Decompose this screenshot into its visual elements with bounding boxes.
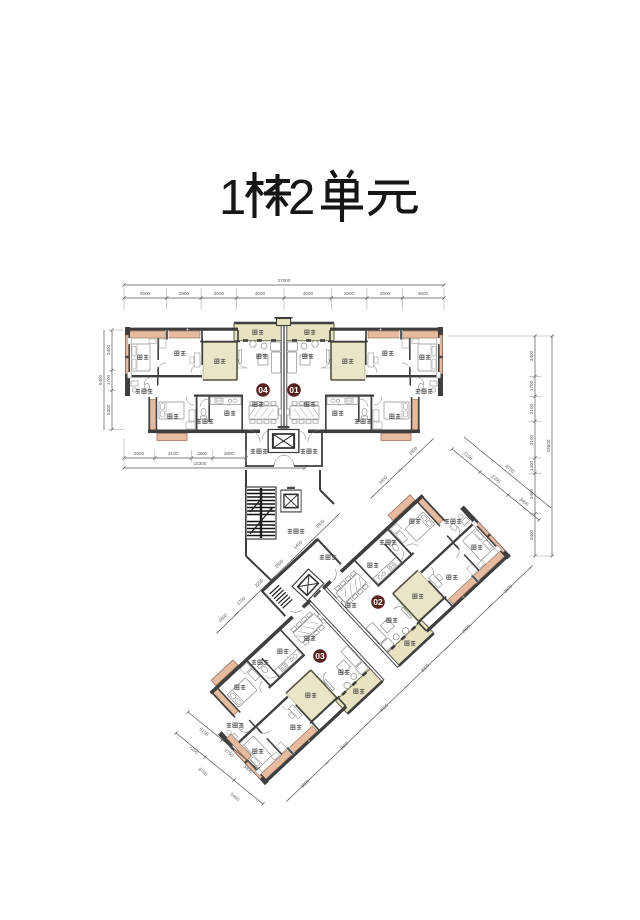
svg-text:3300: 3300	[106, 404, 111, 415]
svg-text:3100: 3100	[529, 434, 534, 445]
svg-text:3000: 3000	[214, 291, 225, 296]
svg-text:1800: 1800	[197, 451, 208, 456]
svg-text:3400: 3400	[529, 350, 534, 361]
svg-text:2100: 2100	[462, 451, 473, 462]
svg-text:8700: 8700	[504, 464, 515, 475]
svg-text:1300: 1300	[529, 460, 534, 471]
svg-text:1800: 1800	[315, 518, 326, 529]
svg-text:3000: 3000	[344, 291, 355, 296]
svg-text:03: 03	[315, 651, 325, 661]
svg-text:2: 2	[288, 171, 315, 225]
svg-text:04: 04	[258, 385, 268, 395]
svg-text:2600: 2600	[134, 451, 145, 456]
svg-text:1700: 1700	[529, 380, 534, 391]
svg-text:8700: 8700	[197, 767, 208, 778]
svg-text:3400: 3400	[378, 474, 389, 485]
svg-text:1700: 1700	[106, 374, 111, 385]
svg-text:3600: 3600	[418, 291, 429, 296]
svg-text:2200: 2200	[490, 474, 501, 485]
svg-text:2650: 2650	[339, 740, 350, 751]
svg-text:2900: 2900	[380, 291, 391, 296]
svg-text:01: 01	[289, 385, 299, 395]
svg-text:2600: 2600	[461, 623, 472, 634]
svg-text:1400: 1400	[293, 539, 304, 550]
svg-text:3100: 3100	[168, 451, 179, 456]
svg-text:2800: 2800	[224, 451, 235, 456]
svg-text:3400: 3400	[106, 344, 111, 355]
svg-text:15300: 15300	[194, 461, 207, 466]
svg-text:8400: 8400	[98, 374, 103, 385]
svg-text:18600: 18600	[546, 439, 551, 452]
svg-text:4000: 4000	[303, 291, 314, 296]
svg-text:3000: 3000	[420, 662, 431, 673]
svg-text:2250: 2250	[254, 577, 265, 588]
svg-text:5400: 5400	[229, 792, 240, 803]
svg-text:27000: 27000	[278, 278, 291, 283]
svg-text:3400: 3400	[529, 529, 534, 540]
svg-text:3600: 3600	[140, 291, 151, 296]
svg-text:2100: 2100	[529, 403, 534, 414]
svg-text:1800: 1800	[218, 612, 229, 623]
svg-text:4000: 4000	[255, 291, 266, 296]
svg-text:1700: 1700	[236, 595, 247, 606]
svg-text:02: 02	[373, 597, 383, 607]
svg-text:2900: 2900	[179, 291, 190, 296]
svg-text:7200: 7200	[188, 745, 199, 756]
svg-text:1: 1	[219, 171, 246, 225]
svg-text:1800: 1800	[274, 558, 285, 569]
